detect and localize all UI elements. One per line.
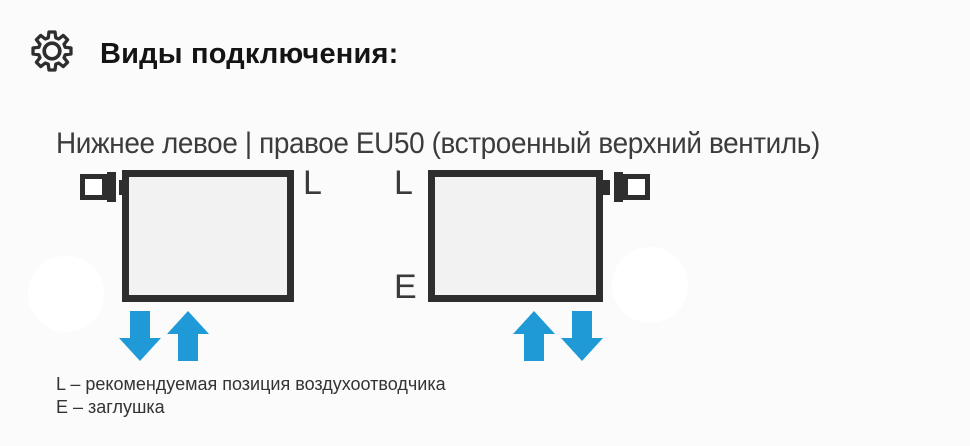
arrow-up-shape (513, 311, 555, 361)
arrow-down-shape (119, 311, 161, 361)
connection-types-diagram: Виды подключения: Нижнее левое | правое … (0, 0, 970, 446)
gear-icon (30, 29, 74, 75)
background-highlight-circle (612, 247, 688, 323)
radiator-left (122, 170, 294, 302)
background-highlight-circle (28, 256, 104, 332)
air-vent-label-left-radiator: L (303, 166, 322, 200)
legend-line-plug: E – заглушка (56, 396, 446, 419)
radiator-right (428, 170, 603, 302)
arrow-down-icon (119, 311, 161, 361)
legend-line-air-vent: L – рекомендуемая позиция воздухоотводчи… (56, 373, 446, 396)
connection-subtitle: Нижнее левое | правое EU50 (встроенный в… (56, 127, 820, 161)
gear-outline (33, 32, 71, 70)
page-title: Виды подключения: (100, 38, 399, 71)
arrow-down-icon (561, 311, 603, 361)
valve-body-icon (623, 174, 650, 200)
air-vent-label-right-radiator: L (394, 166, 413, 200)
arrow-down-shape (561, 311, 603, 361)
plug-label-right-radiator: E (394, 270, 417, 304)
legend: L – рекомендуемая позиция воздухоотводчи… (56, 373, 446, 419)
arrow-up-shape (167, 311, 209, 361)
arrow-up-icon (513, 311, 555, 361)
arrow-up-icon (167, 311, 209, 361)
valve-stem-icon (107, 172, 116, 202)
valve-body-icon (80, 174, 107, 200)
valve-connector-icon (119, 180, 126, 195)
valve-stem-icon (614, 172, 623, 202)
valve-connector-icon (603, 180, 610, 195)
gear-center-hole (44, 43, 60, 59)
